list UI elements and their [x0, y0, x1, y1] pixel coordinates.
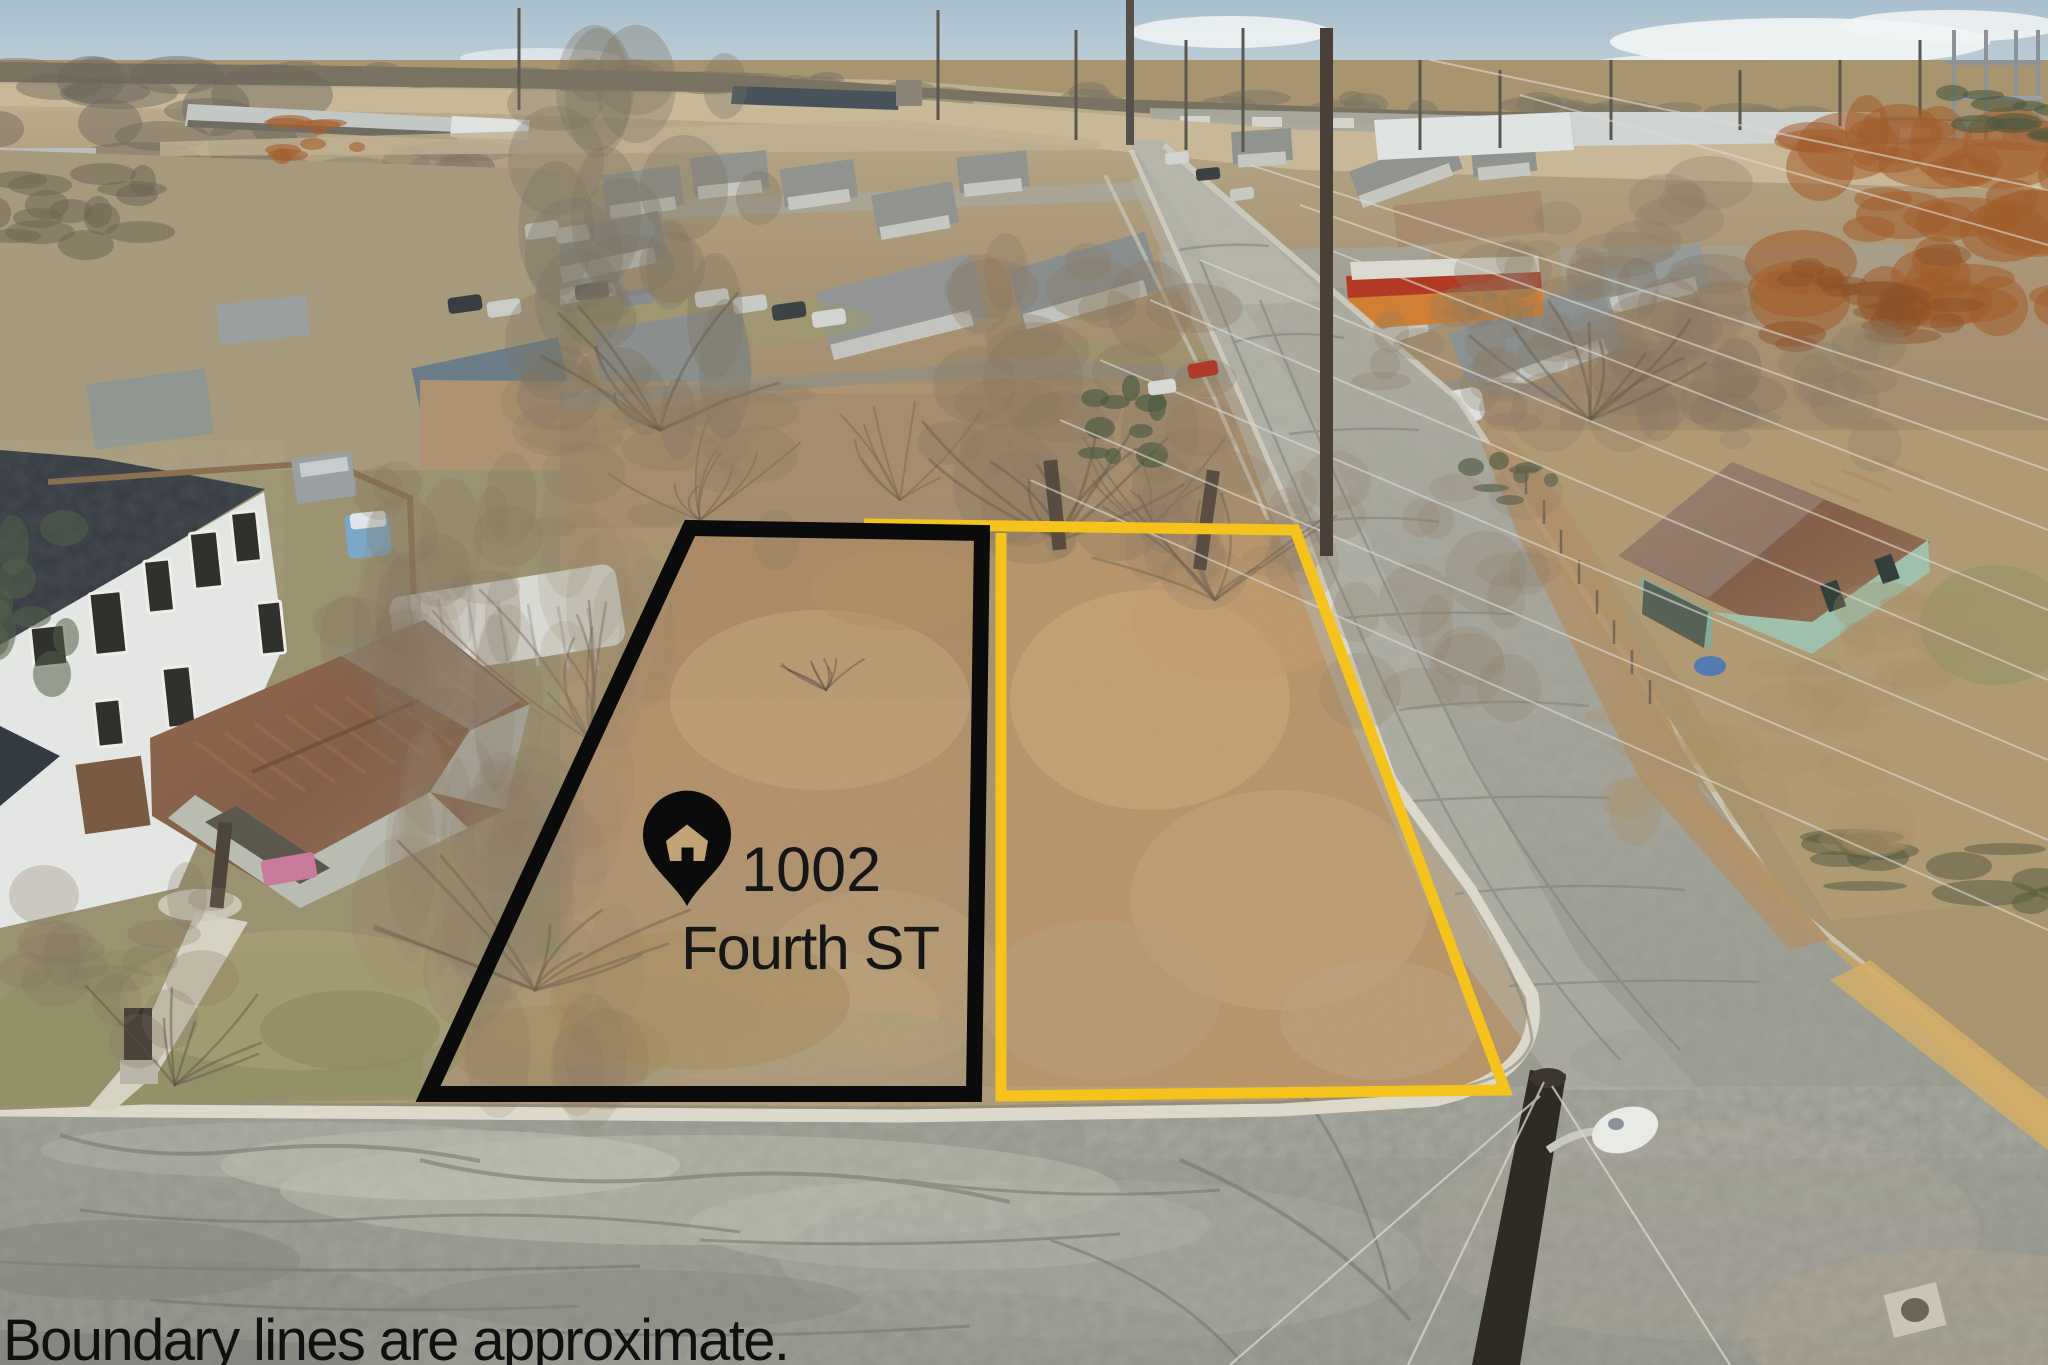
svg-text:Fourth ST: Fourth ST [681, 914, 939, 982]
svg-text:1002: 1002 [741, 835, 881, 905]
svg-text:Boundary lines are approximate: Boundary lines are approximate. [3, 1308, 788, 1365]
